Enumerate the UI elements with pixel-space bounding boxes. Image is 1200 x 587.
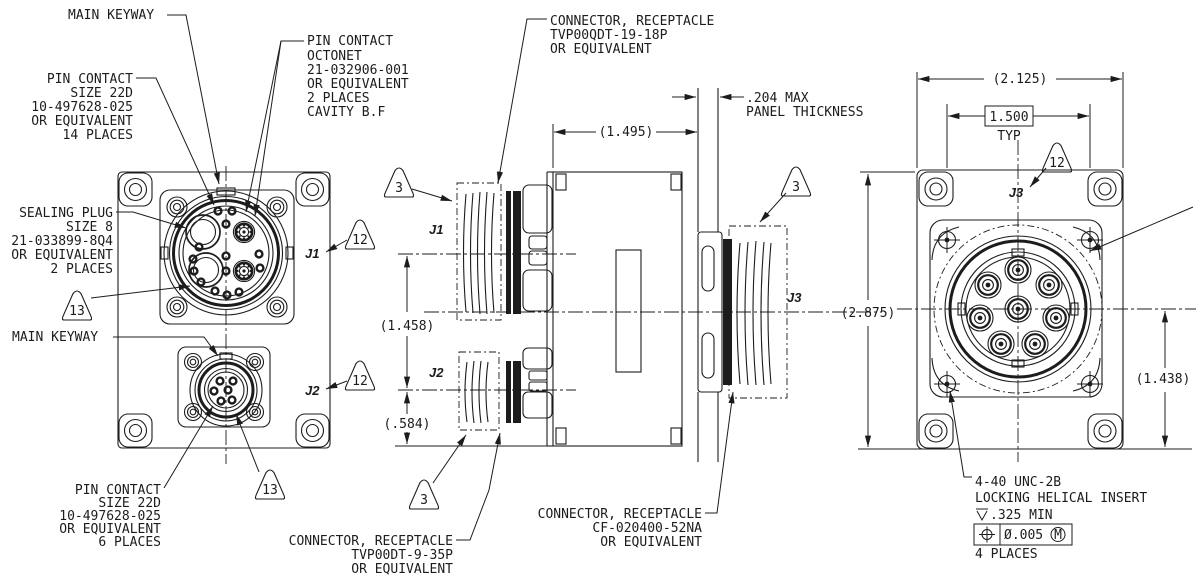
- dim-hole-pattern: 1.500 TYP: [947, 104, 1090, 168]
- svg-text:TVP00QDT-19-18P: TVP00QDT-19-18P: [550, 28, 668, 43]
- svg-text:CF-020400-52NA: CF-020400-52NA: [592, 521, 702, 536]
- flag-3-j3: 3: [760, 167, 811, 222]
- svg-text:LOCKING HELICAL INSERT: LOCKING HELICAL INSERT: [975, 491, 1147, 506]
- mounting-panel: [698, 88, 718, 462]
- drawing-canvas: J1 J2: [0, 0, 1200, 587]
- svg-text:.325 MIN: .325 MIN: [990, 508, 1053, 523]
- callout-pin-contact-14: PIN CONTACT SIZE 22D 10-497628-025 OR EQ…: [31, 72, 214, 205]
- front-view: J1 J2: [118, 166, 330, 464]
- module-body: [553, 172, 682, 446]
- svg-text:12: 12: [352, 374, 368, 389]
- callout-receptacle-j1: CONNECTOR, RECEPTACLE TVP00QDT-19-18P OR…: [498, 14, 714, 183]
- insert-screw-hole: [1077, 227, 1103, 253]
- svg-text:M: M: [1054, 528, 1062, 543]
- callout-receptacle-j2: CONNECTOR, RECEPTACLE TVP00DT-9-35P OR E…: [289, 433, 500, 577]
- svg-text:OCTONET: OCTONET: [307, 49, 362, 64]
- callout-pin-contact-6: PIN CONTACT SIZE 22D 10-497628-025 OR EQ…: [59, 406, 213, 550]
- svg-text:13: 13: [69, 304, 85, 319]
- svg-text:SEALING PLUG: SEALING PLUG: [19, 206, 113, 221]
- svg-text:13: 13: [262, 483, 278, 498]
- svg-text:SIZE 8: SIZE 8: [66, 220, 113, 235]
- j1-side-label: J1: [429, 222, 443, 237]
- position-tolerance-icon: [979, 527, 995, 543]
- callout-main-keyway-bottom: MAIN KEYWAY: [12, 330, 98, 345]
- insert-screw-hole: [934, 227, 960, 253]
- svg-text:CAVITY B.F: CAVITY B.F: [307, 105, 385, 120]
- j3-side-label: J3: [787, 290, 802, 305]
- svg-text:OR EQUIVALENT: OR EQUIVALENT: [11, 248, 113, 263]
- octonet-contact-f: [233, 260, 254, 281]
- flag-12-j3: 12: [1030, 143, 1072, 187]
- svg-text:SIZE 22D: SIZE 22D: [70, 86, 133, 101]
- dim-j2-base: (.584): [384, 392, 553, 446]
- svg-text:TVP00DT-9-35P: TVP00DT-9-35P: [351, 548, 453, 563]
- dim-panel-thickness: .204 MAX PANEL THICKNESS: [672, 91, 863, 120]
- dim-flange-height: (2.875): [841, 172, 915, 447]
- sealing-plug-cavity-a: [186, 215, 220, 249]
- svg-text:OR EQUIVALENT: OR EQUIVALENT: [351, 562, 453, 577]
- depth-icon: [976, 509, 988, 520]
- svg-text:OR EQUIVALENT: OR EQUIVALENT: [550, 42, 652, 57]
- svg-text:CONNECTOR, RECEPTACLE: CONNECTOR, RECEPTACLE: [538, 507, 702, 522]
- svg-text:3: 3: [395, 181, 403, 196]
- svg-text:OR EQUIVALENT: OR EQUIVALENT: [307, 77, 409, 92]
- svg-text:10-497628-025: 10-497628-025: [31, 100, 133, 115]
- j2-connector-face: [178, 347, 270, 427]
- octonet-contact-b: [233, 221, 254, 242]
- svg-text:(1.495): (1.495): [599, 125, 654, 140]
- svg-text:3: 3: [792, 180, 800, 195]
- dim-body-width: (1.495): [553, 124, 697, 168]
- j1-connector-face: [160, 188, 294, 324]
- svg-text:1.500: 1.500: [989, 110, 1028, 125]
- j2-receptacle-side: [459, 348, 552, 430]
- svg-text:OR EQUIVALENT: OR EQUIVALENT: [600, 535, 702, 550]
- dim-j1-j2-spacing: (1.458): [380, 256, 435, 388]
- svg-text:CONNECTOR, RECEPTACLE: CONNECTOR, RECEPTACLE: [289, 534, 453, 549]
- svg-text:12: 12: [352, 233, 368, 248]
- svg-text:PIN CONTACT: PIN CONTACT: [47, 72, 133, 87]
- svg-text:2 PLACES: 2 PLACES: [307, 91, 370, 106]
- svg-text:Ø.005: Ø.005: [1004, 528, 1043, 543]
- svg-text:CONNECTOR, RECEPTACLE: CONNECTOR, RECEPTACLE: [550, 14, 714, 29]
- svg-text:(2.875): (2.875): [841, 306, 896, 321]
- rear-view: J3 (2.125) 1.500 TYP (2.875) (1.438): [841, 72, 1196, 462]
- svg-text:4 PLACES: 4 PLACES: [975, 547, 1038, 562]
- svg-text:(.584): (.584): [384, 417, 431, 432]
- label-plate: [616, 250, 641, 372]
- svg-text:(1.458): (1.458): [380, 319, 435, 334]
- callout-insert-note: 4-40 UNC-2B LOCKING HELICAL INSERT .325 …: [950, 391, 1147, 562]
- svg-text:6 PLACES: 6 PLACES: [98, 535, 161, 550]
- svg-text:OR EQUIVALENT: OR EQUIVALENT: [31, 114, 133, 129]
- svg-text:21-032906-001: 21-032906-001: [307, 63, 409, 78]
- feature-control-frame: Ø.005 M: [974, 524, 1072, 545]
- svg-text:21-033899-8Q4: 21-033899-8Q4: [11, 234, 113, 249]
- flag-12-j2: 12: [326, 361, 375, 390]
- svg-text:12: 12: [1049, 156, 1065, 171]
- svg-text:2 PLACES: 2 PLACES: [50, 262, 113, 277]
- flag-3-j1: 3: [384, 168, 452, 201]
- flag-12-j1: 12: [326, 220, 375, 252]
- callout-main-keyway-top: MAIN KEYWAY: [68, 8, 154, 23]
- j3-face-marking: J3: [1009, 185, 1024, 200]
- side-view: J1 J2 J3 (1.495) .204 MAX PANEL THICKNES…: [380, 88, 882, 462]
- sealing-plug-cavity-b: [189, 253, 223, 287]
- dim-j3-center-height: (1.438): [1136, 311, 1191, 447]
- rim-leader: [1090, 207, 1193, 251]
- j2-face-label: J2: [305, 383, 320, 398]
- svg-text:(2.125): (2.125): [993, 72, 1048, 87]
- mmc-modifier-icon: M: [1051, 528, 1065, 544]
- svg-text:4-40 UNC-2B: 4-40 UNC-2B: [975, 475, 1061, 490]
- svg-text:(1.438): (1.438): [1136, 372, 1191, 387]
- j1-face-label: J1: [305, 246, 319, 261]
- svg-text:3: 3: [420, 493, 428, 508]
- j2-side-label: J2: [429, 365, 444, 380]
- insert-screw-hole: [1077, 371, 1103, 397]
- j1-receptacle-side: [457, 183, 552, 320]
- svg-text:14 PLACES: 14 PLACES: [63, 128, 133, 143]
- callout-receptacle-j3: CONNECTOR, RECEPTACLE CF-020400-52NA OR …: [538, 392, 733, 550]
- svg-text:PIN CONTACT: PIN CONTACT: [307, 34, 393, 49]
- connector-assembly-drawing: J1 J2: [0, 0, 1200, 587]
- callout-pin-contact-octonet: PIN CONTACT OCTONET 21-032906-001 OR EQU…: [246, 34, 409, 216]
- svg-text:TYP: TYP: [997, 129, 1021, 144]
- svg-text:.204 MAX: .204 MAX: [746, 91, 809, 106]
- svg-text:PANEL THICKNESS: PANEL THICKNESS: [746, 105, 863, 120]
- insert-screw-hole: [934, 371, 960, 397]
